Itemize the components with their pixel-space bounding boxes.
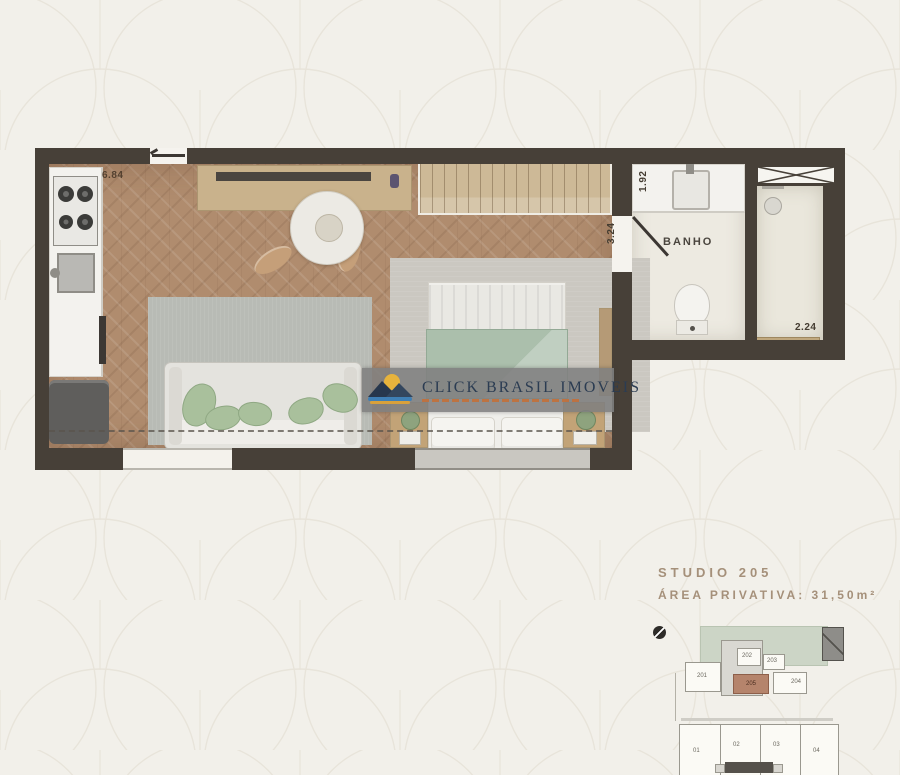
watermark-logo-icon bbox=[366, 373, 418, 407]
wall-left bbox=[35, 148, 49, 470]
keyplan-entry-canopy bbox=[725, 762, 773, 773]
keyplan-unit-04-label: 04 bbox=[813, 748, 820, 754]
watermark: CLICK BRASIL IMOVEIS bbox=[362, 368, 614, 412]
wall-bath-partition bbox=[745, 164, 757, 340]
bed-quilt bbox=[429, 285, 565, 331]
decor-vase bbox=[390, 174, 399, 188]
refrigerator bbox=[49, 380, 109, 444]
nightstand-plant bbox=[576, 410, 596, 430]
wall-right bbox=[823, 183, 845, 360]
sofa-arm-left bbox=[169, 367, 182, 445]
bed-pillow-right bbox=[501, 417, 563, 451]
keyplan-unit-01-label: 01 bbox=[693, 748, 700, 754]
dim-entry-width: 6.84 bbox=[102, 170, 123, 181]
keyplan-divider bbox=[800, 725, 801, 775]
bed-pillow-left bbox=[431, 417, 495, 451]
dining-table bbox=[290, 191, 364, 265]
north-arrow-icon bbox=[653, 626, 666, 639]
unit-title: STUDIO 205 bbox=[658, 565, 772, 580]
nightstand-plant bbox=[401, 411, 420, 430]
shower-head-icon bbox=[764, 197, 782, 215]
shower-valves-icon bbox=[762, 186, 784, 189]
keyplan-unit-205-highlighted: 205 bbox=[733, 674, 769, 694]
keyplan-unit-202-label: 202 bbox=[742, 653, 752, 659]
keyplan-canopy-side bbox=[715, 764, 725, 773]
stove-burners-icon bbox=[53, 176, 98, 246]
dim-bath-width: 1.92 bbox=[638, 171, 649, 192]
unit-area: ÁREA PRIVATIVA: 31,50m² bbox=[658, 588, 877, 602]
window-bedroom bbox=[415, 448, 590, 470]
toilet-flush-button bbox=[690, 326, 695, 331]
keyplan-unit-02-label: 02 bbox=[733, 742, 740, 748]
page-canvas: 6.84 1.92 3.24 2.24 BANHO CLICK BRASIL I… bbox=[0, 0, 900, 775]
nightstand-frame bbox=[573, 431, 597, 445]
keyplan-unit-203-label: 203 bbox=[767, 658, 777, 664]
tv-panel bbox=[99, 316, 106, 364]
wall-divider bbox=[612, 148, 632, 470]
projection-dashed-line bbox=[49, 430, 612, 432]
sideboard-tv bbox=[216, 172, 371, 181]
watermark-tagline-strip bbox=[422, 399, 580, 402]
table-centerpiece bbox=[315, 214, 343, 242]
bath-faucet-icon bbox=[686, 164, 694, 174]
nightstand-frame bbox=[399, 431, 421, 445]
keyplan-canopy-side bbox=[773, 764, 783, 773]
keyplan-unit-03-label: 03 bbox=[773, 742, 780, 748]
bath-basin bbox=[672, 170, 710, 210]
kitchen-faucet-icon bbox=[50, 268, 60, 278]
dim-shower-width: 2.24 bbox=[795, 322, 816, 333]
window-living bbox=[123, 448, 232, 470]
keyplan: 201 202 203 204 205 01 02 03 04 bbox=[645, 618, 870, 773]
dim-room-depth: 3.24 bbox=[606, 223, 617, 244]
kitchen-sink bbox=[57, 253, 95, 293]
wall-right-thin bbox=[837, 160, 845, 186]
keyplan-unit-201-label: 201 bbox=[697, 673, 707, 679]
keyplan-unit-204-label: 204 bbox=[791, 679, 801, 685]
street-label-line bbox=[675, 673, 676, 721]
entry-door-leaf bbox=[152, 154, 185, 157]
watermark-brand: CLICK BRASIL IMOVEIS bbox=[422, 379, 641, 397]
keyplan-roof-block bbox=[822, 627, 844, 661]
keyplan-unit-204 bbox=[773, 672, 807, 694]
keyplan-road bbox=[681, 718, 833, 721]
wall-bath-bottom bbox=[612, 340, 845, 360]
toilet-tank bbox=[676, 320, 708, 335]
wardrobe bbox=[418, 160, 612, 215]
bathroom-label: BANHO bbox=[663, 236, 713, 248]
